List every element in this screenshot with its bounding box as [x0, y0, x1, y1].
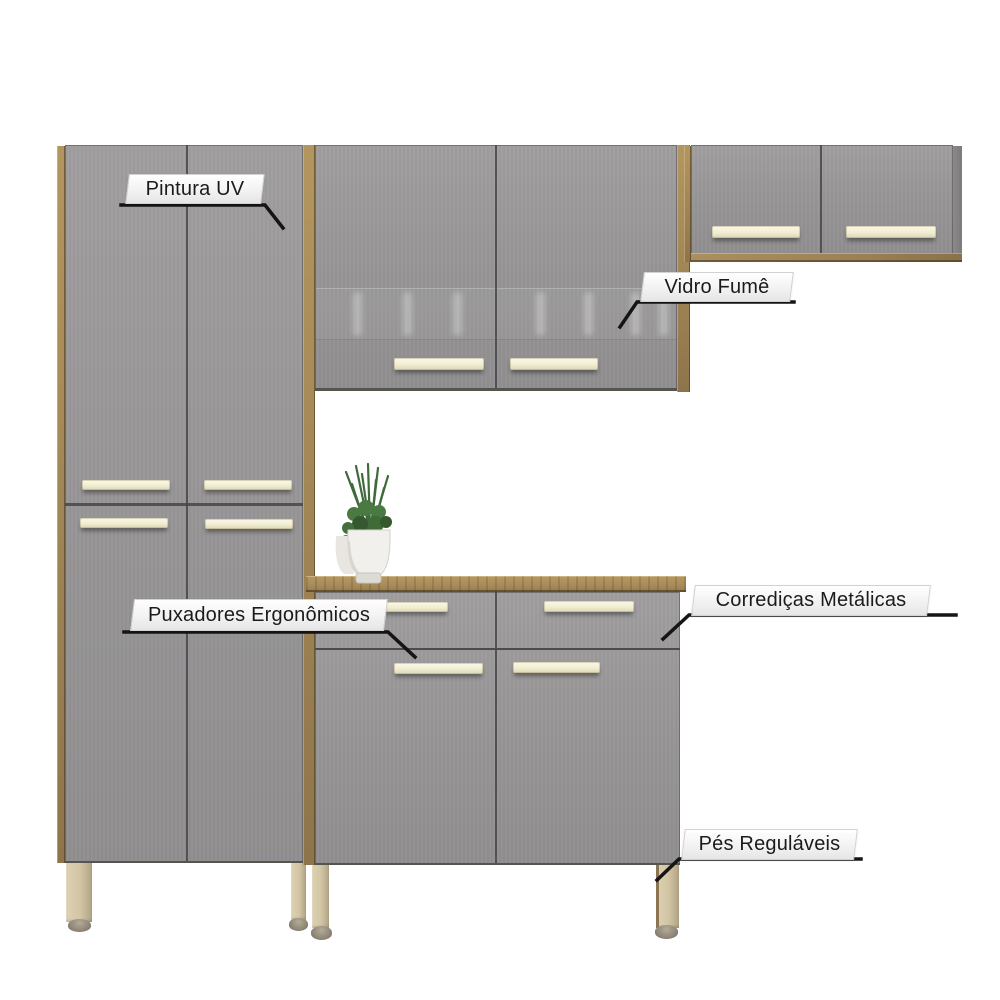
right-cabinet-door-seam [820, 145, 822, 254]
adjustable-foot [68, 919, 91, 932]
base-cabinet-front [315, 592, 680, 865]
drawer-handle [384, 602, 448, 612]
adjustable-leg [291, 863, 306, 920]
door-handle [394, 358, 484, 370]
adjustable-leg [66, 863, 92, 922]
leader-line-pes-regulaveis [657, 859, 861, 880]
callout-pintura-uv: Pintura UV [127, 174, 263, 204]
tall-cabinet-bottom-edge [65, 861, 303, 863]
door-handle [712, 226, 800, 238]
callout-label: Pés Reguláveis [683, 829, 856, 860]
glass-reflection-streak [353, 292, 362, 336]
door-handle [510, 358, 598, 370]
callout-label: Puxadores Ergonômicos [132, 599, 386, 631]
callout-corredicas-metalicas: Corrediças Metálicas [693, 585, 929, 616]
drawer-handle [544, 601, 634, 612]
drawer-seam [495, 592, 497, 650]
right-cabinet-side-panel [953, 146, 962, 254]
tall-cabinet-left-edge [57, 146, 65, 863]
base-door-seam [495, 650, 497, 865]
plant-decor [326, 462, 406, 587]
callout-label: Pintura UV [127, 174, 263, 204]
door-handle [204, 480, 292, 490]
glass-reflection-streak [631, 292, 640, 336]
right-cabinet-bottom-panel [691, 253, 962, 262]
adjustable-foot [655, 925, 678, 939]
glass-reflection-streak [536, 292, 545, 336]
leader-line-corredicas-metalicas [663, 615, 956, 639]
drawer-bottom-line [315, 648, 680, 650]
callout-puxadores-ergonomicos: Puxadores Ergonômicos [132, 599, 386, 631]
product-image: Pintura UV Vidro Fumê Puxadores Ergonômi… [0, 0, 1000, 1000]
door-handle [513, 662, 600, 673]
adjustable-foot [311, 926, 332, 940]
glass-door-seam [495, 145, 497, 390]
glass-reflection-streak [453, 292, 462, 336]
adjustable-leg [312, 865, 329, 928]
door-handle [846, 226, 936, 238]
glass-reflection-streak [584, 292, 593, 336]
base-cabinet-bottom-edge [315, 863, 680, 865]
callout-vidro-fume: Vidro Fumê [642, 272, 792, 302]
door-handle [82, 480, 170, 490]
tall-cabinet-door-seam-horizontal [65, 503, 303, 506]
middle-side-panel [303, 145, 315, 865]
door-handle [394, 663, 483, 674]
door-handle [205, 519, 293, 529]
plant-pot-base [356, 573, 381, 583]
callout-label: Vidro Fumê [642, 272, 792, 302]
callout-label: Corrediças Metálicas [693, 585, 929, 616]
right-cabinet-left-edge [684, 146, 691, 262]
adjustable-leg [656, 865, 679, 928]
callout-pes-regulaveis: Pés Reguláveis [683, 829, 856, 860]
adjustable-foot [289, 918, 308, 931]
glass-cabinet-bottom-edge [315, 388, 677, 391]
glass-reflection-streak [403, 292, 412, 336]
door-handle [80, 518, 168, 528]
